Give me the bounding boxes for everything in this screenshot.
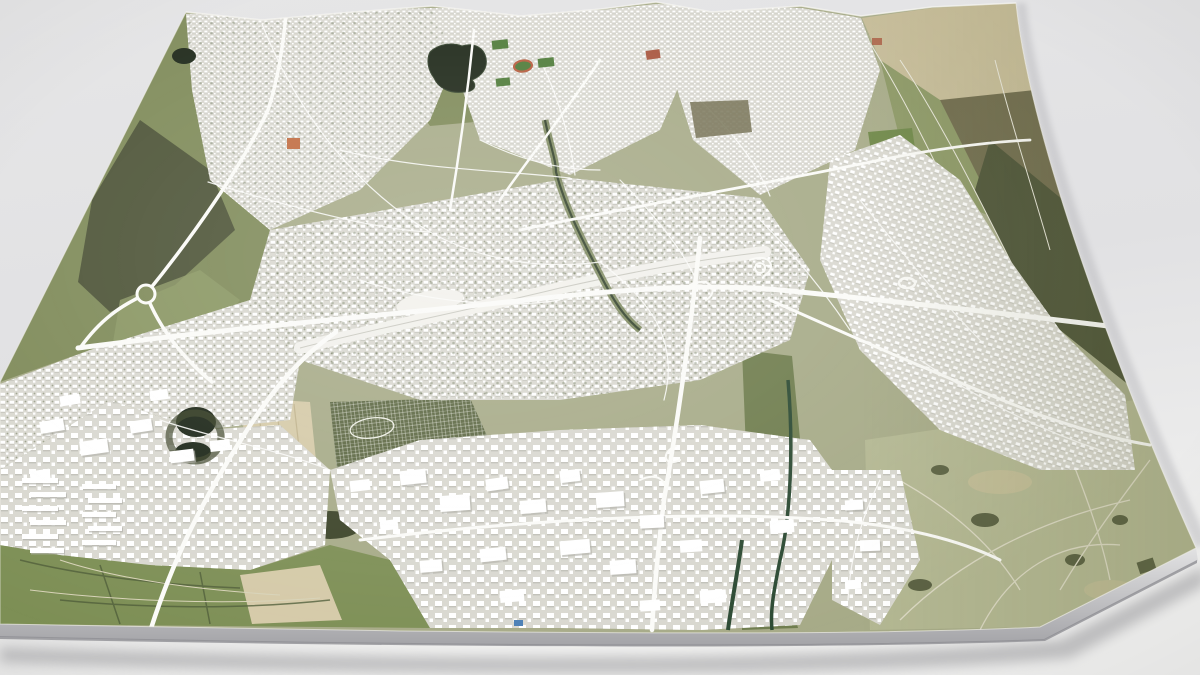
screenshot-root — [0, 0, 1200, 675]
map-render-canvas — [0, 0, 1200, 675]
map-surface — [0, 0, 1200, 675]
